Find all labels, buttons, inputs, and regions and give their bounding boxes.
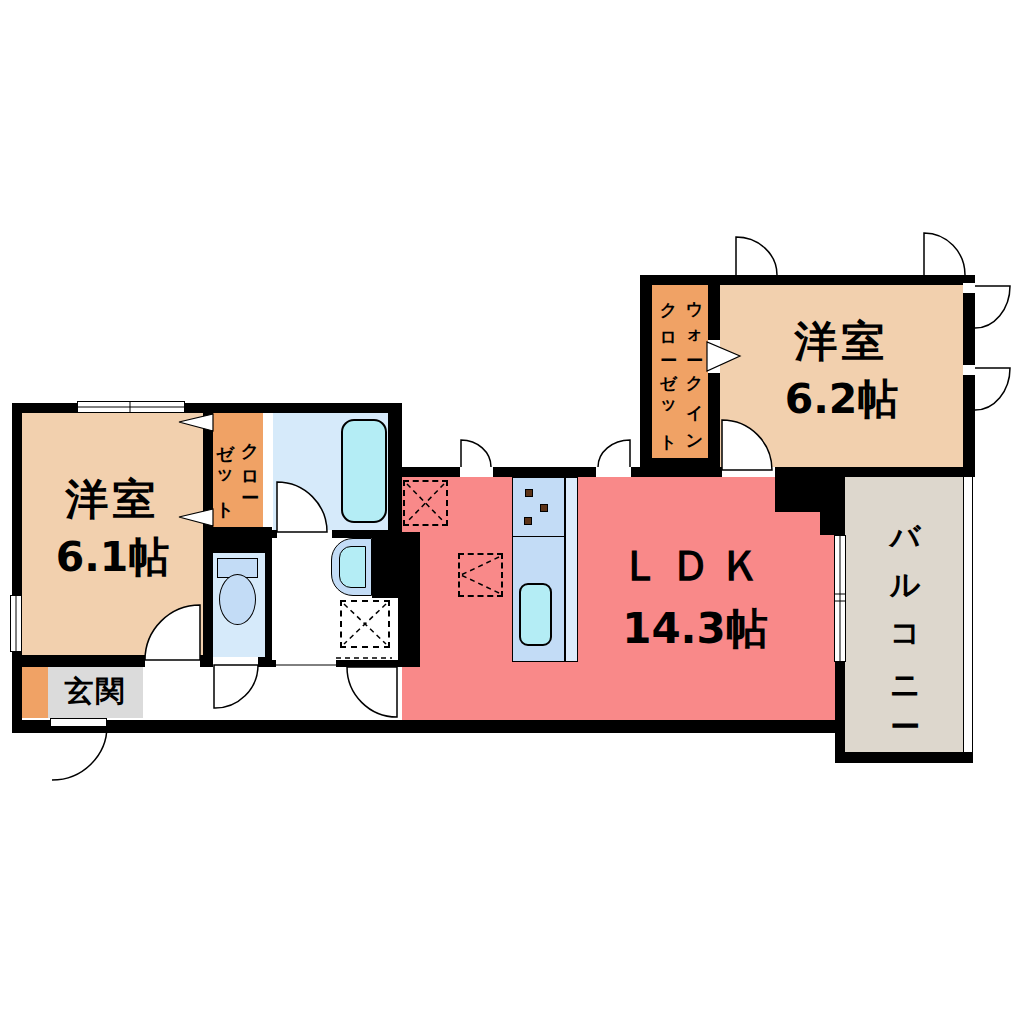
room2-north-window2-swing-icon	[924, 233, 965, 275]
stove-burner-icon	[524, 517, 532, 525]
balcony-railing	[963, 477, 973, 763]
wall-top-left-block	[12, 403, 402, 413]
room1-door-opening	[145, 655, 200, 667]
washroom-door-opening	[276, 660, 336, 667]
wall-bottom	[12, 720, 845, 733]
entrance-label: 玄関	[48, 665, 143, 718]
wall-closet-bottom	[203, 527, 272, 553]
kitchen-stove-section	[512, 477, 565, 538]
room2-door-sill	[722, 467, 775, 477]
wall-ldk-balcony-lower	[835, 662, 845, 763]
stove-burner-icon	[540, 504, 548, 512]
ldk-floor	[402, 477, 835, 720]
room-western-1-name-label: 洋室	[22, 477, 203, 523]
bathtub-icon	[341, 419, 387, 523]
toilet-bowl-icon	[219, 574, 256, 625]
wall-balcony-bottom	[845, 752, 973, 763]
refrigerator-space	[403, 480, 448, 526]
entrance-door-swing-icon	[52, 726, 107, 780]
room-western-2-name-label: 洋室	[720, 319, 963, 365]
wall-top-right-block	[640, 275, 975, 285]
entrance-cabinet	[18, 665, 48, 718]
window-room1-west	[10, 595, 22, 652]
room2-east-window2-swing-icon	[975, 368, 1010, 410]
toilet-door-swing-icon	[214, 665, 258, 708]
wash-basin-bowl	[339, 546, 366, 588]
wall-wic-right	[708, 285, 720, 467]
wall-basin-chase	[372, 532, 398, 598]
room-western-2-size-label: 6.2帖	[720, 376, 963, 422]
toilet-door-opening	[213, 657, 258, 667]
room2-east-window1-opening	[963, 283, 975, 293]
kitchen-sink	[519, 583, 552, 646]
floorplan-canvas: 洋室 6.1帖 洋室 6.2帖 ＬＤＫ 14.3帖 玄関 バルコニー ウォークイ…	[0, 0, 1020, 1020]
wall-wic-left	[640, 275, 652, 476]
window-ldk-balcony	[834, 535, 846, 662]
wall-left	[12, 403, 22, 732]
stove-burner-icon	[525, 489, 533, 497]
wall-corner-block-b	[820, 467, 845, 535]
closet-label-column-right: クロー	[238, 430, 262, 495]
ldk-north-window1-swing-icon	[461, 440, 491, 467]
hallway-ldk-door-swing-icon	[347, 667, 397, 717]
entrance-door-leaf	[50, 718, 107, 727]
room2-east-window1-swing-icon	[975, 286, 1010, 328]
wall-wic-bottom	[652, 458, 708, 477]
washing-machine-space	[340, 600, 390, 648]
ldk-window2-opening	[596, 467, 631, 477]
closet-label-column-left: ゼット	[213, 432, 237, 518]
room2-north-window1-swing-icon	[736, 237, 777, 275]
wic-opening	[708, 340, 720, 373]
ldk-name-label: ＬＤＫ	[555, 543, 835, 589]
room-western-1-size-label: 6.1帖	[22, 534, 203, 580]
balcony-label: バルコニー	[884, 502, 925, 728]
wall-room2-right	[963, 275, 975, 477]
ldk-size-label: 14.3帖	[555, 606, 835, 652]
bath-door-opening	[277, 530, 332, 538]
furniture-space	[458, 553, 503, 597]
wall-toilet-right	[265, 527, 272, 667]
wic-label-column-right: ウォークイン	[684, 290, 707, 453]
wall-washroom-ldk	[398, 532, 420, 667]
ldk-window1-opening	[460, 467, 493, 477]
room2-east-window2-opening	[963, 365, 975, 375]
wic-label-column-left: クローゼット	[658, 290, 681, 453]
ldk-north-window2-swing-icon	[598, 440, 630, 467]
wall-bath-right	[388, 403, 402, 532]
window-room1-north	[77, 401, 185, 413]
